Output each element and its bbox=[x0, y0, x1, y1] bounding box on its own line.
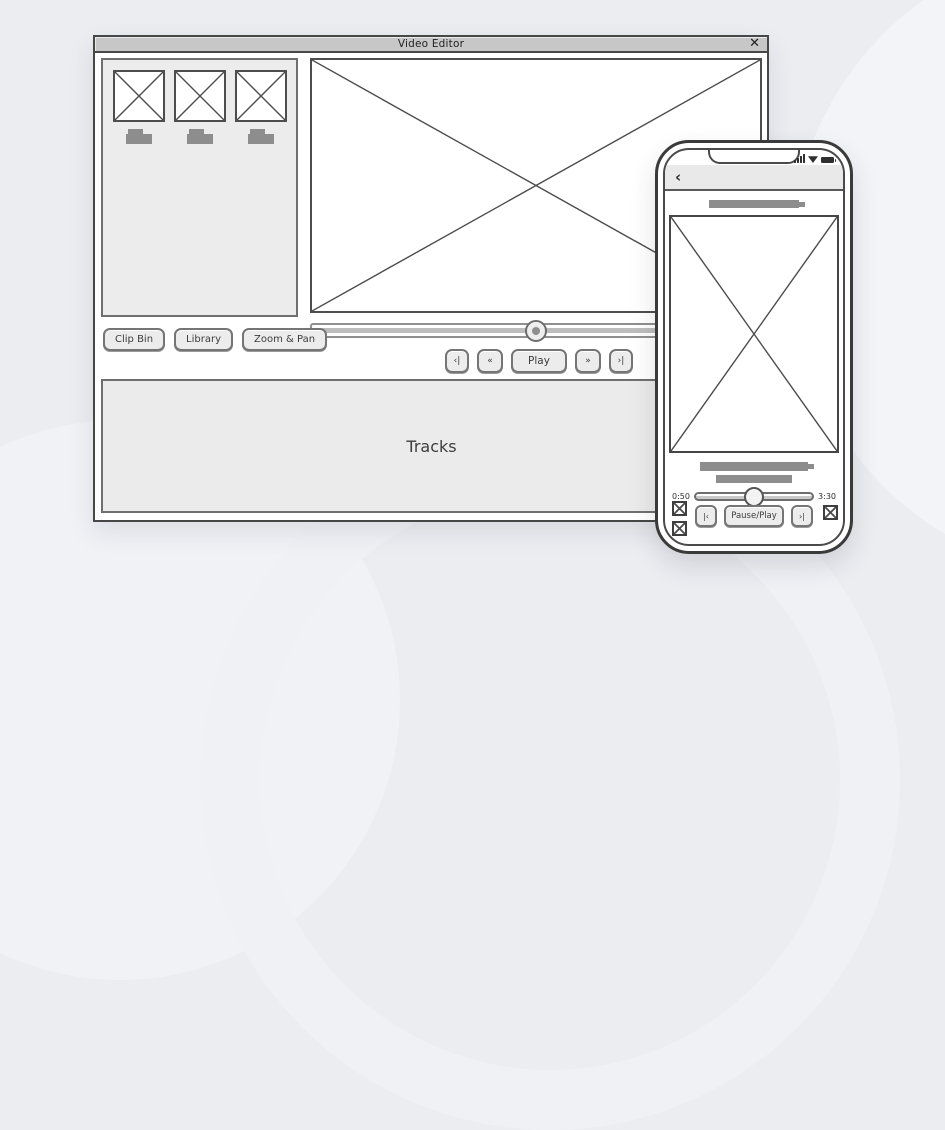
image-placeholder-box bbox=[823, 505, 838, 520]
clip-label-placeholder bbox=[187, 129, 213, 144]
image-placeholder-box bbox=[672, 521, 687, 536]
image-placeholder-x-icon bbox=[825, 507, 836, 518]
transport-controls: ‹| « Play » ›| bbox=[445, 349, 633, 373]
fast-forward-button[interactable]: » bbox=[575, 349, 601, 373]
clip-thumbnail-placeholder[interactable] bbox=[235, 70, 287, 122]
phone-skip-start-button[interactable]: |‹ bbox=[695, 505, 717, 527]
clip-thumbnail-row bbox=[103, 60, 296, 144]
panel-button-row: Clip Bin Library Zoom & Pan bbox=[103, 328, 327, 351]
phone-mockup: ‹ 0:50 3:30 |‹ bbox=[655, 140, 853, 554]
phone-notch bbox=[708, 150, 800, 164]
phone-video-placeholder bbox=[669, 215, 839, 453]
phone-left-placeholders bbox=[672, 501, 687, 536]
phone-skip-end-button[interactable]: ›| bbox=[791, 505, 813, 527]
window-title: Video Editor bbox=[398, 38, 464, 50]
phone-transport-controls: |‹ Pause/Play ›| bbox=[695, 505, 813, 527]
battery-icon bbox=[821, 157, 834, 163]
image-placeholder-box bbox=[672, 501, 687, 516]
image-placeholder-x-icon bbox=[115, 72, 163, 120]
clip-item[interactable] bbox=[174, 70, 226, 144]
phone-status-icons bbox=[794, 154, 834, 163]
clip-bin-panel bbox=[101, 58, 298, 317]
image-placeholder-x-icon bbox=[674, 523, 685, 534]
phone-pause-play-button[interactable]: Pause/Play bbox=[724, 505, 784, 527]
timeline-scrubber-knob[interactable] bbox=[525, 320, 547, 342]
play-button[interactable]: Play bbox=[511, 349, 567, 373]
clip-item[interactable] bbox=[113, 70, 165, 144]
image-placeholder-x-icon bbox=[671, 217, 837, 451]
wifi-icon bbox=[808, 155, 818, 163]
phone-header: ‹ bbox=[665, 165, 843, 191]
clip-item[interactable] bbox=[235, 70, 287, 144]
tracks-label: Tracks bbox=[406, 437, 456, 456]
phone-text-placeholder bbox=[700, 462, 808, 471]
skip-start-button[interactable]: ‹| bbox=[445, 349, 469, 373]
phone-bottom-bar: |‹ Pause/Play ›| bbox=[665, 492, 843, 538]
clip-thumbnail-placeholder[interactable] bbox=[113, 70, 165, 122]
clip-bin-button[interactable]: Clip Bin bbox=[103, 328, 165, 351]
clip-label-placeholder bbox=[126, 129, 152, 144]
skip-end-button[interactable]: ›| bbox=[609, 349, 633, 373]
window-titlebar[interactable]: Video Editor ✕ bbox=[95, 37, 767, 53]
clip-label-placeholder bbox=[248, 129, 274, 144]
image-placeholder-x-icon bbox=[674, 503, 685, 514]
cellular-signal-icon bbox=[794, 154, 805, 163]
clip-thumbnail-placeholder[interactable] bbox=[174, 70, 226, 122]
zoom-pan-button[interactable]: Zoom & Pan bbox=[242, 328, 327, 351]
image-placeholder-x-icon bbox=[237, 72, 285, 120]
phone-screen: ‹ 0:50 3:30 |‹ bbox=[663, 148, 845, 546]
rewind-button[interactable]: « bbox=[477, 349, 503, 373]
back-chevron-icon[interactable]: ‹ bbox=[675, 170, 681, 185]
image-placeholder-x-icon bbox=[176, 72, 224, 120]
phone-text-placeholder bbox=[716, 475, 792, 483]
phone-title-placeholder bbox=[709, 200, 799, 208]
library-button[interactable]: Library bbox=[174, 328, 233, 351]
close-icon[interactable]: ✕ bbox=[749, 37, 760, 51]
